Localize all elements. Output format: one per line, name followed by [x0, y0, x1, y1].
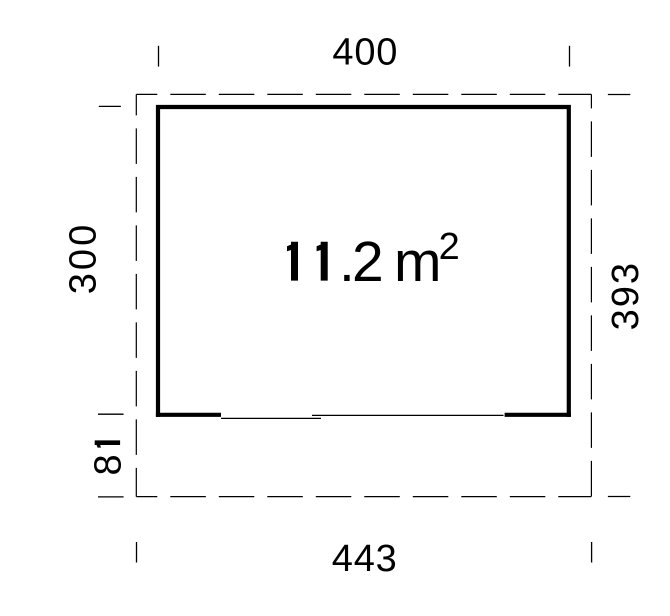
svg-text:400: 400	[332, 32, 398, 74]
svg-text:8: 8	[88, 454, 130, 475]
svg-text:393: 393	[605, 261, 647, 330]
svg-text:300: 300	[63, 222, 105, 294]
svg-text:443: 443	[332, 538, 398, 580]
